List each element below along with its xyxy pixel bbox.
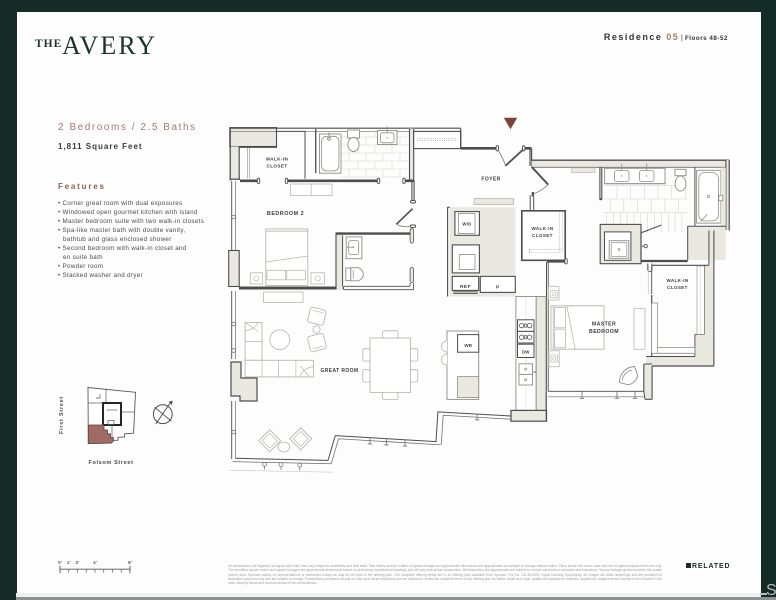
svg-text:REF: REF (460, 284, 471, 290)
svg-text:P: P (496, 285, 500, 291)
svg-text:WALK-IN: WALK-IN (531, 226, 553, 231)
svg-text:WALK-IN: WALK-IN (266, 157, 289, 162)
svg-text:WALK-IN: WALK-IN (666, 278, 688, 283)
svg-text:GREAT ROOM: GREAT ROOM (320, 368, 358, 374)
svg-text:2': 2' (76, 560, 80, 565)
svg-text:DW: DW (522, 350, 530, 355)
svg-text:0': 0' (58, 560, 62, 565)
svg-text:CLOSET: CLOSET (266, 164, 287, 169)
svg-text:First Street: First Street (59, 396, 65, 434)
svg-text:1': 1' (67, 560, 71, 565)
svg-text:4': 4' (93, 560, 97, 565)
svg-text:8': 8' (128, 560, 132, 565)
svg-text:BEDROOM: BEDROOM (589, 329, 619, 335)
svg-text:CLOSET: CLOSET (532, 233, 553, 238)
svg-text:CLOSET: CLOSET (667, 285, 688, 290)
svg-text:FOYER: FOYER (481, 177, 500, 183)
svg-text:MASTER: MASTER (592, 322, 616, 328)
svg-text:W/D: W/D (462, 222, 471, 227)
svg-text:Folsom Street: Folsom Street (88, 460, 133, 466)
svg-text:BEDROOM 2: BEDROOM 2 (267, 211, 304, 217)
svg-text:WR: WR (464, 343, 472, 348)
